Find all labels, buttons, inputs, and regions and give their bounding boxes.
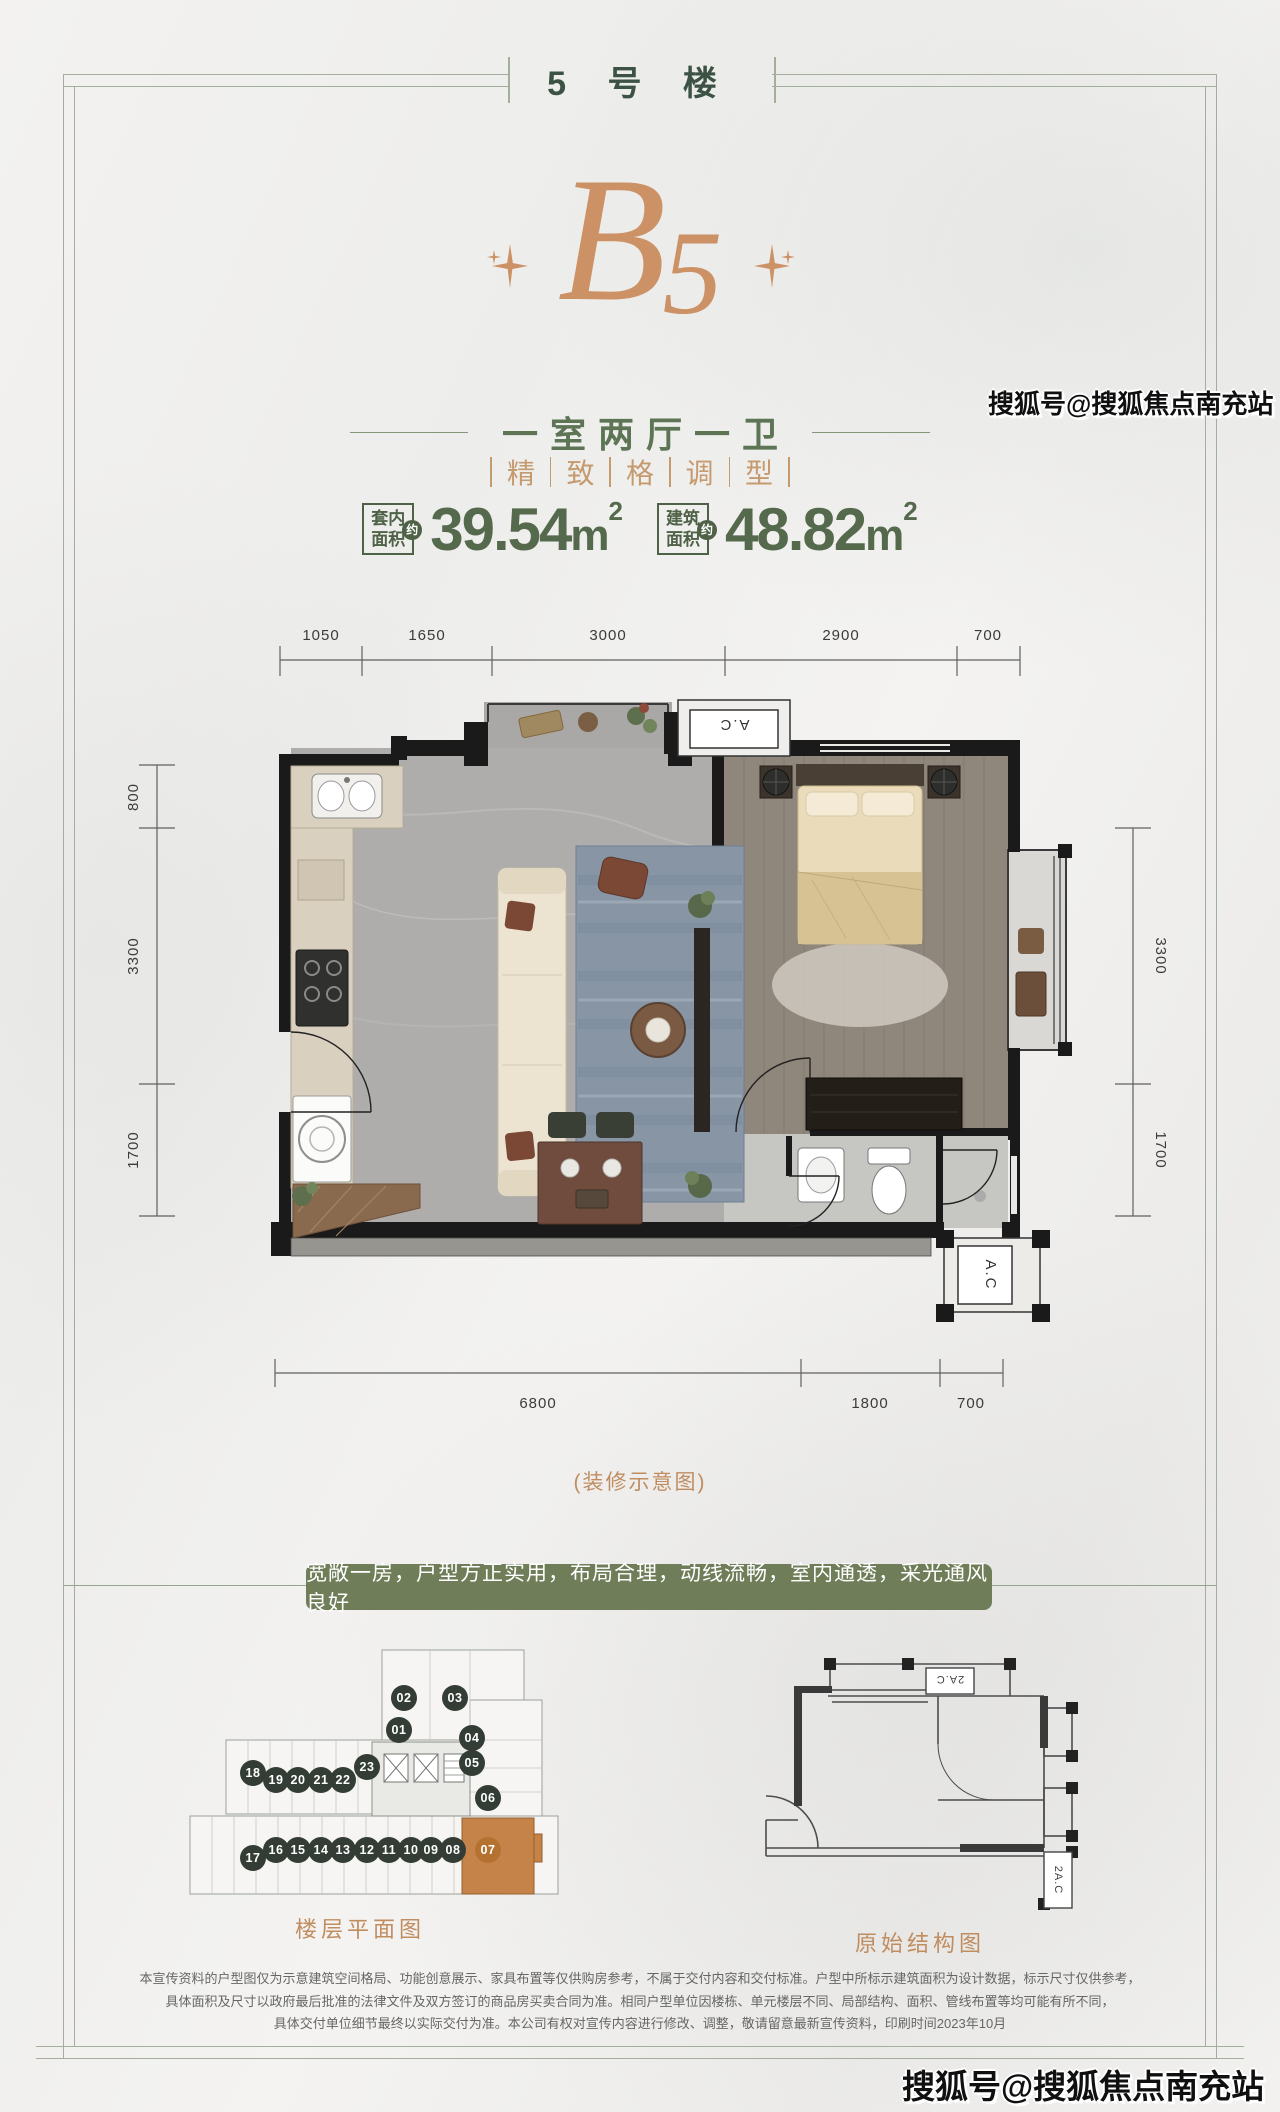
structure-ac-top: 2A.C (936, 1673, 964, 1685)
svg-text:1050: 1050 (302, 627, 339, 644)
plan-caption: (装修示意图) (0, 1466, 1280, 1496)
unit-badge: 14 (308, 1837, 334, 1863)
area-info-row: 套内 面积 约 39.54m2 建筑 面积 约 48.82m2 (0, 498, 1280, 560)
tagline-char: 致 (566, 452, 594, 492)
floor-plate-label: 楼层平面图 (240, 1912, 480, 1944)
toilet (872, 1166, 906, 1214)
area-inner: 套内 面积 约 39.54m2 (362, 498, 623, 560)
highlighted-unit-07 (462, 1818, 542, 1894)
tagline-char: 型 (745, 452, 773, 492)
disclaimer-line: 具体交付单位细节最终以实际交付为准。本公司有权对宣传内容进行修改、调整，敬请留意… (110, 2013, 1170, 2036)
svg-text:6800: 6800 (519, 1395, 556, 1412)
headboard (796, 764, 924, 786)
unit-badge: 04 (459, 1725, 485, 1751)
svg-text:700: 700 (974, 627, 1002, 644)
svg-text:1700: 1700 (125, 1131, 142, 1168)
building-title: 5 号 楼 (0, 56, 1280, 105)
area-gross: 建筑 面积 约 48.82m2 (657, 498, 918, 560)
unit-code-letter: B (558, 140, 667, 338)
area-label-box: 建筑 面积 约 (657, 503, 709, 555)
floor-plan: A.C A.C (120, 555, 1180, 1460)
unit-badge: 02 (391, 1685, 417, 1711)
unit-badge: 06 (475, 1785, 501, 1811)
bay-table (1016, 972, 1046, 1016)
sparkle-icon (748, 240, 796, 292)
area-value: 48.82m2 (725, 498, 918, 560)
svg-text:800: 800 (125, 783, 142, 811)
svg-text:700: 700 (957, 1395, 985, 1412)
structure-ac-side: 2A.C (1052, 1866, 1064, 1894)
structure-diagram: 2A.C 2A.C (750, 1620, 1110, 1950)
poster-page: 5 号 楼 B5 一室两厅一卫 精 致 格 调 型 (0, 0, 1280, 2112)
tagline-char: 精 (507, 452, 535, 492)
style-tagline: 精 致 格 调 型 (0, 452, 1280, 492)
rule-right (812, 432, 930, 433)
tagline-char: 调 (686, 452, 714, 492)
disclaimer-line: 具体面积及尺寸以政府最后批准的法律文件及双方签订的商品房买卖合同为准。相同户型单… (110, 1991, 1170, 2014)
tv-console (694, 928, 710, 1132)
ac-label-bottom: A.C (982, 1259, 999, 1290)
ac-unit-bottom: A.C (936, 1230, 1050, 1322)
media-unit (806, 1078, 962, 1130)
unit-badge: 05 (459, 1750, 485, 1776)
svg-text:1800: 1800 (851, 1395, 888, 1412)
stove (296, 950, 348, 1026)
watermark: 搜狐号@搜狐焦点南充站 (902, 2060, 1264, 2108)
watermark: 搜狐号@搜狐焦点南充站 (988, 384, 1273, 421)
svg-text:3300: 3300 (1152, 937, 1169, 974)
unit-code-number: 5 (662, 206, 722, 339)
ledge (291, 1238, 931, 1256)
area-value: 39.54m2 (430, 498, 623, 560)
washer (293, 1096, 351, 1182)
ac-label-top: A.C (718, 716, 749, 733)
unit-badge: 17 (240, 1845, 266, 1871)
area-label-box: 套内 面积 约 (362, 503, 414, 555)
structure-label: 原始结构图 (800, 1926, 1040, 1958)
unit-badge: 22 (330, 1767, 356, 1793)
unit-code: B5 (0, 150, 1280, 333)
toilet-tank (868, 1148, 910, 1164)
unit-badge: 01 (386, 1717, 412, 1743)
approx-badge: 约 (402, 520, 422, 540)
unit-badge-highlight: 07 (475, 1837, 501, 1863)
bay-stool (1018, 928, 1044, 954)
selling-points-banner: 宽敞一房，户型方正实用，布局合理，动线流畅，室内通透，采光通风良好 (306, 1564, 992, 1610)
tagline-char: 格 (626, 452, 654, 492)
rule-left (350, 432, 468, 433)
elevator-core (372, 1742, 470, 1816)
unit-badge: 23 (354, 1754, 380, 1780)
svg-text:3300: 3300 (125, 937, 142, 974)
dining-table (538, 1142, 642, 1224)
unit-badge: 18 (240, 1760, 266, 1786)
layout-type: 一室两厅一卫 (490, 406, 790, 458)
approx-badge: 约 (697, 520, 717, 540)
unit-badge: 12 (354, 1837, 380, 1863)
disclaimer-line: 本宣传资料的户型图仅为示意建筑空间格局、功能创意展示、家具布置等仅供购房参考，不… (110, 1968, 1170, 1991)
svg-text:2900: 2900 (822, 627, 859, 644)
disclaimer: 本宣传资料的户型图仅为示意建筑空间格局、功能创意展示、家具布置等仅供购房参考，不… (110, 1968, 1170, 2036)
unit-badge: 03 (442, 1685, 468, 1711)
unit-badge: 16 (263, 1837, 289, 1863)
svg-text:1650: 1650 (408, 627, 445, 644)
svg-text:1700: 1700 (1152, 1131, 1169, 1168)
svg-text:3000: 3000 (589, 627, 626, 644)
ac-unit-top: A.C (678, 700, 790, 756)
sparkle-icon (486, 240, 534, 292)
